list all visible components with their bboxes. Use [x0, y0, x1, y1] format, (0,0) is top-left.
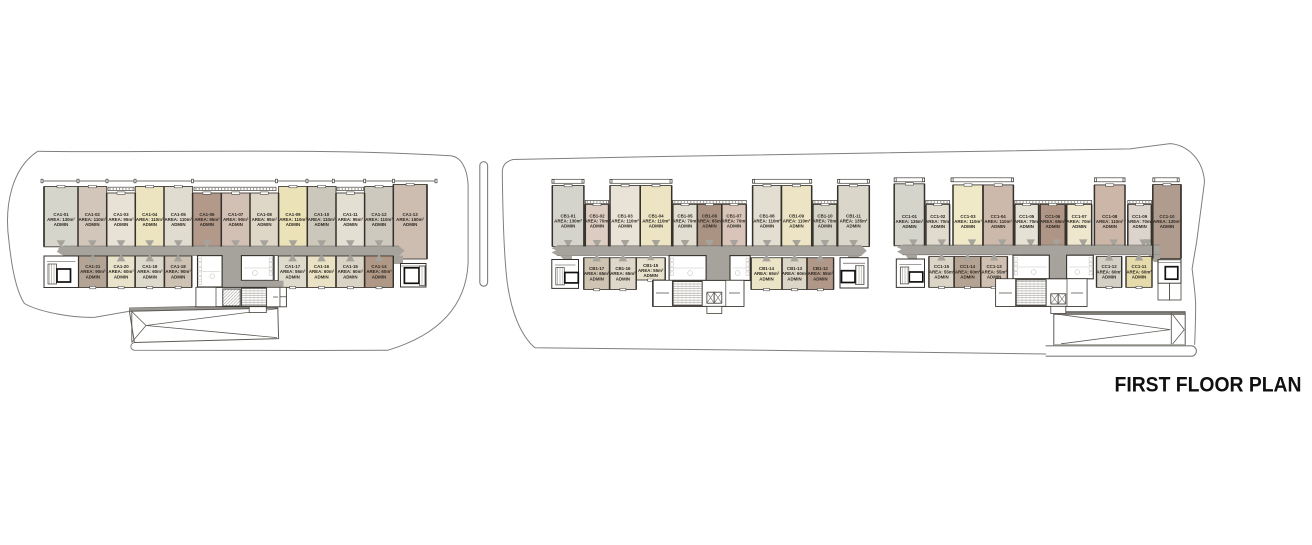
svg-text:ADMIN: ADMIN — [931, 224, 945, 229]
svg-text:ADMIN: ADMIN — [616, 276, 630, 281]
svg-text:ADMIN: ADMIN — [590, 276, 604, 281]
svg-text:ADMIN: ADMIN — [171, 274, 185, 279]
svg-text:ADMIN: ADMIN — [1132, 224, 1146, 229]
svg-text:FIRST FLOOR PLAN: FIRST FLOOR PLAN — [1115, 372, 1302, 397]
svg-text:ADMIN: ADMIN — [702, 224, 716, 229]
svg-text:ADMIN: ADMIN — [1046, 224, 1060, 229]
svg-text:ADMIN: ADMIN — [760, 224, 774, 229]
svg-text:ADMIN: ADMIN — [286, 222, 300, 227]
svg-text:ADMIN: ADMIN — [649, 224, 663, 229]
svg-text:ADMIN: ADMIN — [1102, 275, 1116, 280]
svg-text:ADMIN: ADMIN — [114, 222, 128, 227]
svg-text:ADMIN: ADMIN — [171, 222, 185, 227]
svg-text:ADMIN: ADMIN — [618, 224, 632, 229]
svg-text:ADMIN: ADMIN — [314, 222, 328, 227]
svg-text:ADMIN: ADMIN — [1072, 224, 1086, 229]
svg-text:ADMIN: ADMIN — [85, 222, 99, 227]
svg-text:ADMIN: ADMIN — [590, 224, 604, 229]
svg-text:ADMIN: ADMIN — [818, 224, 832, 229]
svg-text:ADMIN: ADMIN — [846, 224, 860, 229]
svg-text:ADMIN: ADMIN — [143, 274, 157, 279]
svg-text:ADMIN: ADMIN — [678, 224, 692, 229]
svg-text:ADMIN: ADMIN — [86, 274, 100, 279]
svg-text:ADMIN: ADMIN — [787, 276, 801, 281]
svg-text:ADMIN: ADMIN — [1160, 224, 1174, 229]
svg-text:ADMIN: ADMIN — [902, 224, 916, 229]
svg-text:ADMIN: ADMIN — [257, 222, 271, 227]
svg-text:ADMIN: ADMIN — [759, 276, 773, 281]
svg-text:ADMIN: ADMIN — [343, 274, 357, 279]
svg-text:ADMIN: ADMIN — [644, 273, 658, 278]
svg-text:ADMIN: ADMIN — [727, 224, 741, 229]
svg-text:ADMIN: ADMIN — [789, 224, 803, 229]
svg-text:ADMIN: ADMIN — [372, 274, 386, 279]
svg-text:ADMIN: ADMIN — [54, 222, 68, 227]
svg-text:ADMIN: ADMIN — [813, 276, 827, 281]
svg-text:ADMIN: ADMIN — [314, 274, 328, 279]
svg-text:ADMIN: ADMIN — [285, 274, 299, 279]
svg-text:ADMIN: ADMIN — [1020, 224, 1034, 229]
svg-text:ADMIN: ADMIN — [343, 222, 357, 227]
svg-text:ADMIN: ADMIN — [200, 222, 214, 227]
svg-text:ADMIN: ADMIN — [114, 274, 128, 279]
svg-text:ADMIN: ADMIN — [1103, 224, 1117, 229]
svg-text:ADMIN: ADMIN — [403, 222, 417, 227]
svg-text:ADMIN: ADMIN — [372, 222, 386, 227]
svg-text:ADMIN: ADMIN — [961, 224, 975, 229]
svg-text:ADMIN: ADMIN — [960, 275, 974, 280]
svg-text:ADMIN: ADMIN — [561, 224, 575, 229]
svg-text:ADMIN: ADMIN — [143, 222, 157, 227]
svg-text:ADMIN: ADMIN — [229, 222, 243, 227]
svg-text:ADMIN: ADMIN — [934, 275, 948, 280]
svg-text:ADMIN: ADMIN — [991, 224, 1005, 229]
svg-text:ADMIN: ADMIN — [1132, 275, 1146, 280]
